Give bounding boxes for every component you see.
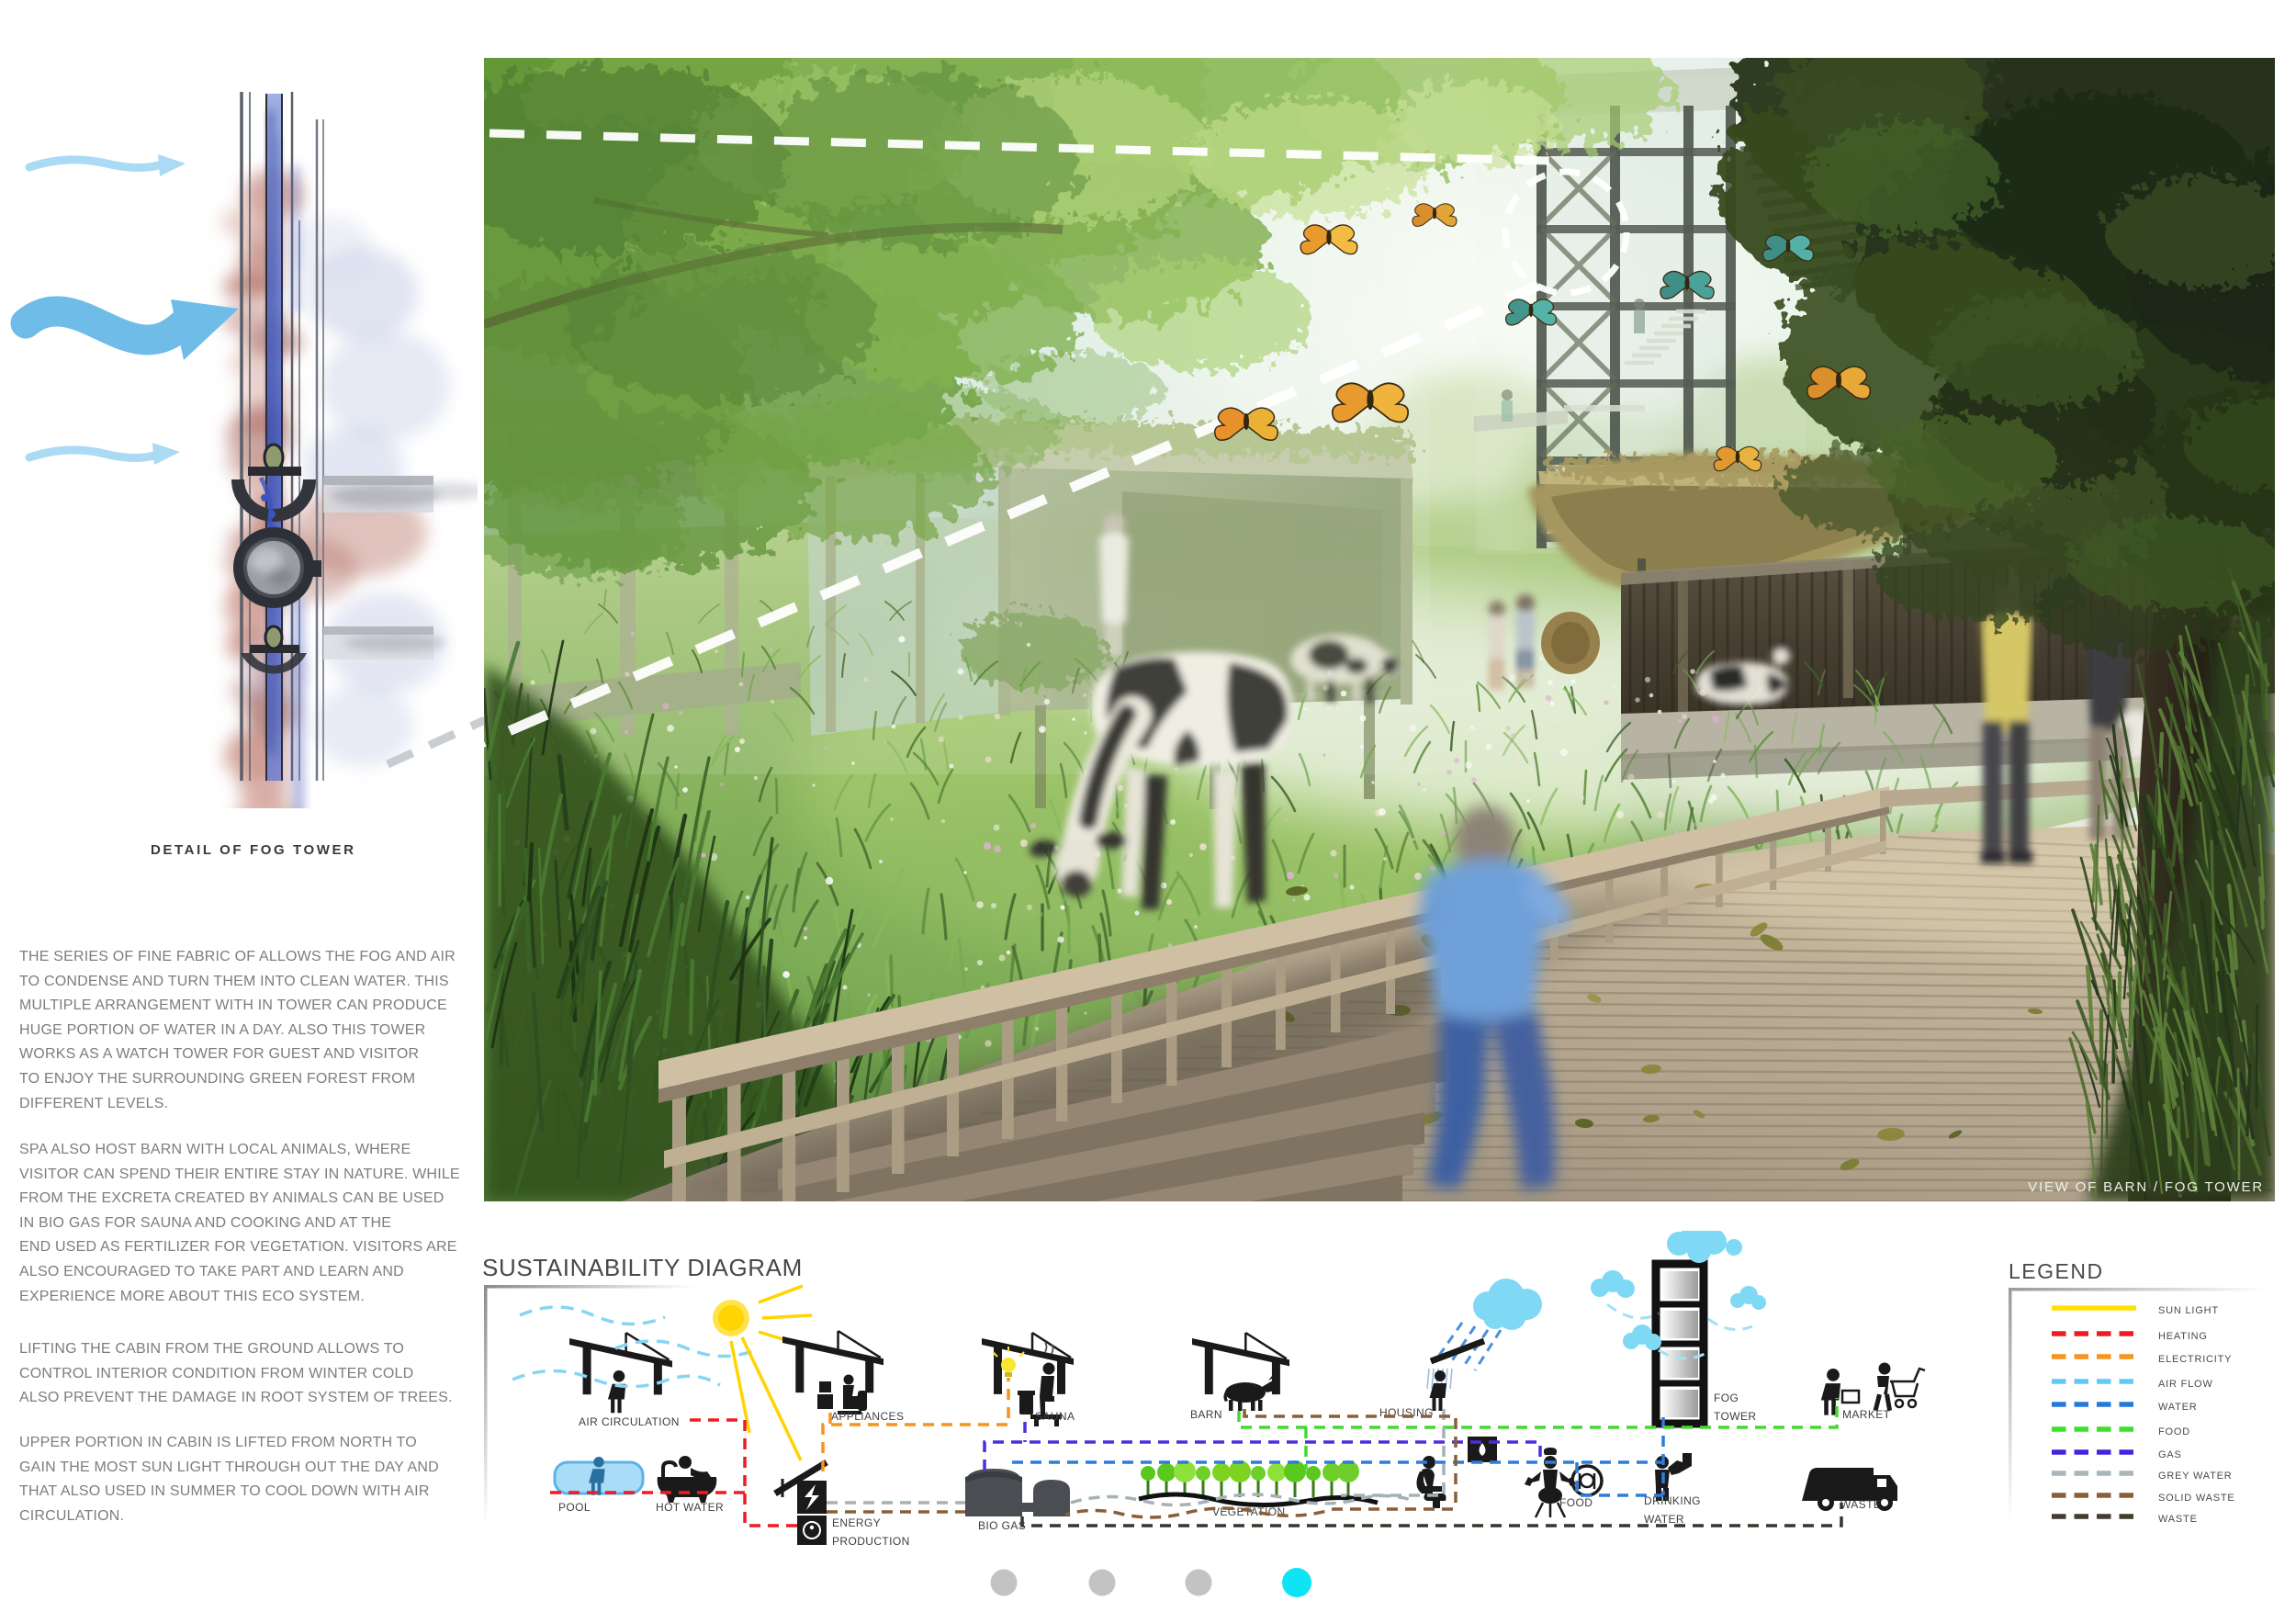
svg-text:WASTE: WASTE <box>1840 1498 1881 1511</box>
svg-text:WASTE: WASTE <box>2158 1514 2198 1525</box>
svg-text:LEGEND: LEGEND <box>2009 1259 2104 1283</box>
svg-text:WATER: WATER <box>2158 1402 2198 1413</box>
svg-text:BARN: BARN <box>1190 1408 1222 1421</box>
svg-text:ELECTRICITY: ELECTRICITY <box>2158 1354 2232 1365</box>
svg-text:MARKET: MARKET <box>1842 1408 1891 1421</box>
svg-text:ENERGY: ENERGY <box>832 1516 881 1529</box>
svg-text:AIR CIRCULATION: AIR CIRCULATION <box>579 1415 680 1428</box>
svg-text:FOG: FOG <box>1714 1392 1739 1404</box>
svg-text:GREY WATER: GREY WATER <box>2158 1471 2233 1482</box>
svg-text:DRINKING: DRINKING <box>1644 1494 1701 1507</box>
svg-text:SAUNA: SAUNA <box>1035 1410 1075 1423</box>
svg-text:PRODUCTION: PRODUCTION <box>832 1535 910 1548</box>
svg-text:APPLIANCES: APPLIANCES <box>831 1410 904 1423</box>
svg-text:HEATING: HEATING <box>2158 1331 2208 1342</box>
svg-text:GAS: GAS <box>2158 1449 2182 1460</box>
svg-text:SUSTAINABILITY DIAGRAM: SUSTAINABILITY DIAGRAM <box>482 1254 803 1281</box>
svg-text:WATER: WATER <box>1644 1513 1684 1526</box>
svg-text:AIR FLOW: AIR FLOW <box>2158 1379 2213 1390</box>
svg-text:FOOD: FOOD <box>1559 1496 1593 1509</box>
svg-text:SUN LIGHT: SUN LIGHT <box>2158 1305 2219 1316</box>
svg-text:SOLID WASTE: SOLID WASTE <box>2158 1493 2235 1504</box>
svg-text:VIEW OF BARN / FOG TOWER: VIEW OF BARN / FOG TOWER <box>2028 1179 2264 1195</box>
svg-text:FOOD: FOOD <box>2158 1426 2190 1437</box>
svg-text:BIO GAS: BIO GAS <box>978 1519 1026 1532</box>
svg-text:HOT WATER: HOT WATER <box>656 1501 724 1514</box>
svg-text:POOL: POOL <box>558 1501 591 1514</box>
svg-text:TOWER: TOWER <box>1714 1410 1756 1423</box>
